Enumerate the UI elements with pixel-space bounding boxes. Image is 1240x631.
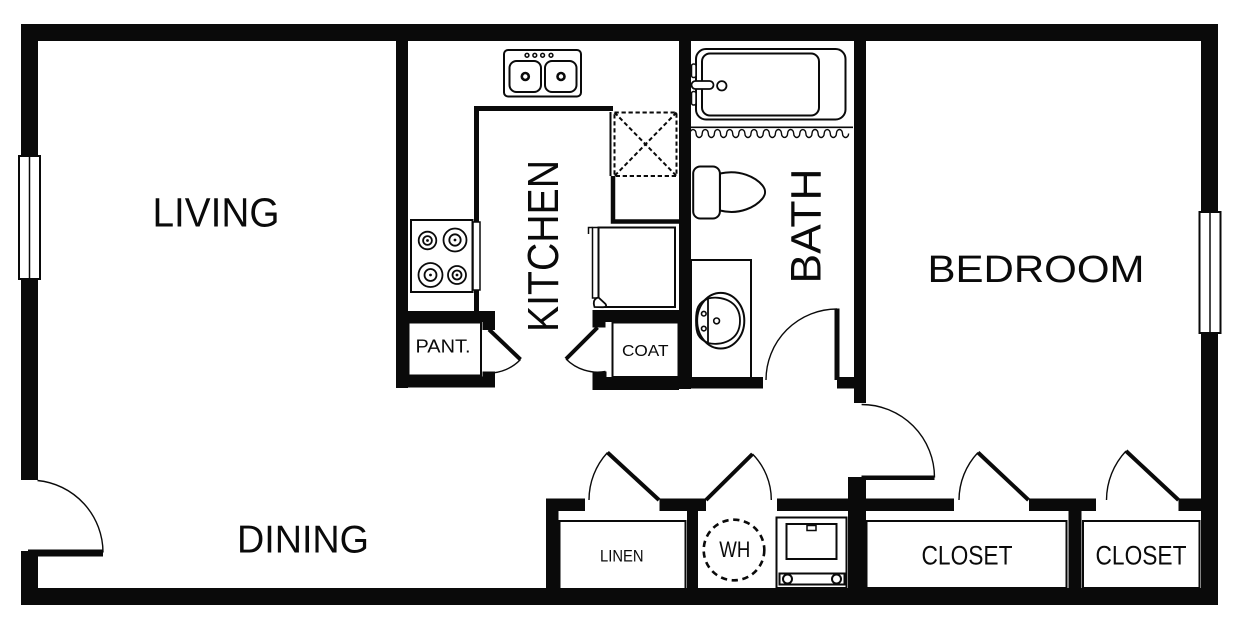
svg-text:LINEN: LINEN — [600, 547, 644, 566]
svg-text:BATH: BATH — [783, 169, 830, 284]
svg-text:CLOSET: CLOSET — [922, 539, 1013, 570]
svg-text:BEDROOM: BEDROOM — [928, 249, 1145, 291]
svg-text:COAT: COAT — [622, 343, 669, 360]
svg-text:DINING: DINING — [237, 519, 369, 562]
svg-text:LIVING: LIVING — [153, 190, 280, 236]
svg-text:KITCHEN: KITCHEN — [520, 160, 568, 332]
svg-text:PANT.: PANT. — [416, 335, 471, 356]
svg-text:WH: WH — [719, 537, 750, 562]
svg-text:CLOSET: CLOSET — [1096, 539, 1187, 570]
